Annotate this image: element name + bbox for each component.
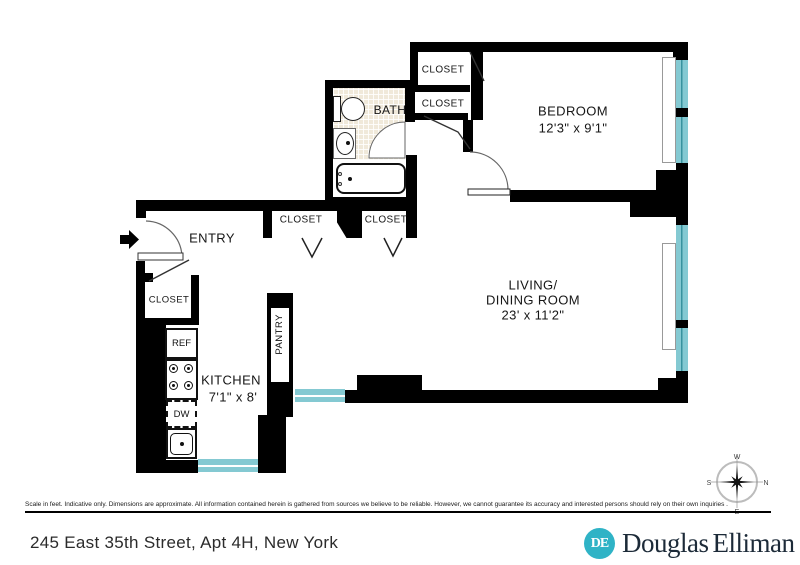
closet-bifold-door (384, 238, 402, 256)
brand-logo: DE DouglasElliman (584, 528, 794, 559)
entry-label: ENTRY (189, 231, 235, 246)
closet-label: CLOSET (365, 215, 407, 226)
logo-name-part1: Douglas (622, 528, 709, 558)
kitchen-label: KITCHEN (201, 373, 261, 388)
entry-arrow-icon (120, 230, 139, 249)
bedroom-label: BEDROOM (538, 104, 608, 119)
floorplan-page: REF DW BEDROOM 12'3" x 9'1" LIVING/ DINI… (0, 0, 800, 565)
disclaimer-text: Scale in feet. Indicative only. Dimensio… (25, 501, 728, 508)
compass-letter-w: W (734, 454, 741, 461)
door-symbols-overlay (0, 0, 800, 565)
address-text: 245 East 35th Street, Apt 4H, New York (30, 533, 338, 553)
logo-name-part2: Elliman (713, 528, 795, 558)
bedroom-door-arc (470, 152, 508, 190)
closet-door-leaf (149, 260, 189, 281)
bath-label: BATH (374, 103, 407, 117)
closet-door-leaf (470, 52, 484, 81)
divider-line (25, 511, 771, 513)
pantry-label: PANTRY (274, 314, 285, 355)
closet-label: CLOSET (149, 295, 189, 306)
compass-letter-n: N (763, 480, 768, 487)
compass-letter-s: S (707, 480, 712, 487)
kitchen-dimensions: 7'1" x 8' (209, 390, 258, 405)
bedroom-dimensions: 12'3" x 9'1" (539, 121, 608, 136)
closet-label: CLOSET (422, 99, 464, 110)
closet-label: CLOSET (280, 215, 322, 226)
bedroom-door-threshold (468, 189, 510, 195)
living-room-label-line2: DINING ROOM (486, 293, 580, 308)
living-room-dimensions: 23' x 11'2" (502, 308, 565, 323)
entry-door-leaf (138, 253, 183, 260)
compass-star (720, 465, 754, 499)
logo-name: DouglasElliman (622, 528, 794, 559)
closet-label: CLOSET (422, 65, 464, 76)
bath-door-arc (369, 122, 405, 158)
closet-door-leaf (424, 116, 470, 149)
logo-monogram-icon: DE (584, 528, 615, 559)
closet-bifold-door (302, 238, 322, 257)
entry-door-arc (146, 221, 182, 257)
living-room-label-line1: LIVING/ (508, 278, 557, 293)
